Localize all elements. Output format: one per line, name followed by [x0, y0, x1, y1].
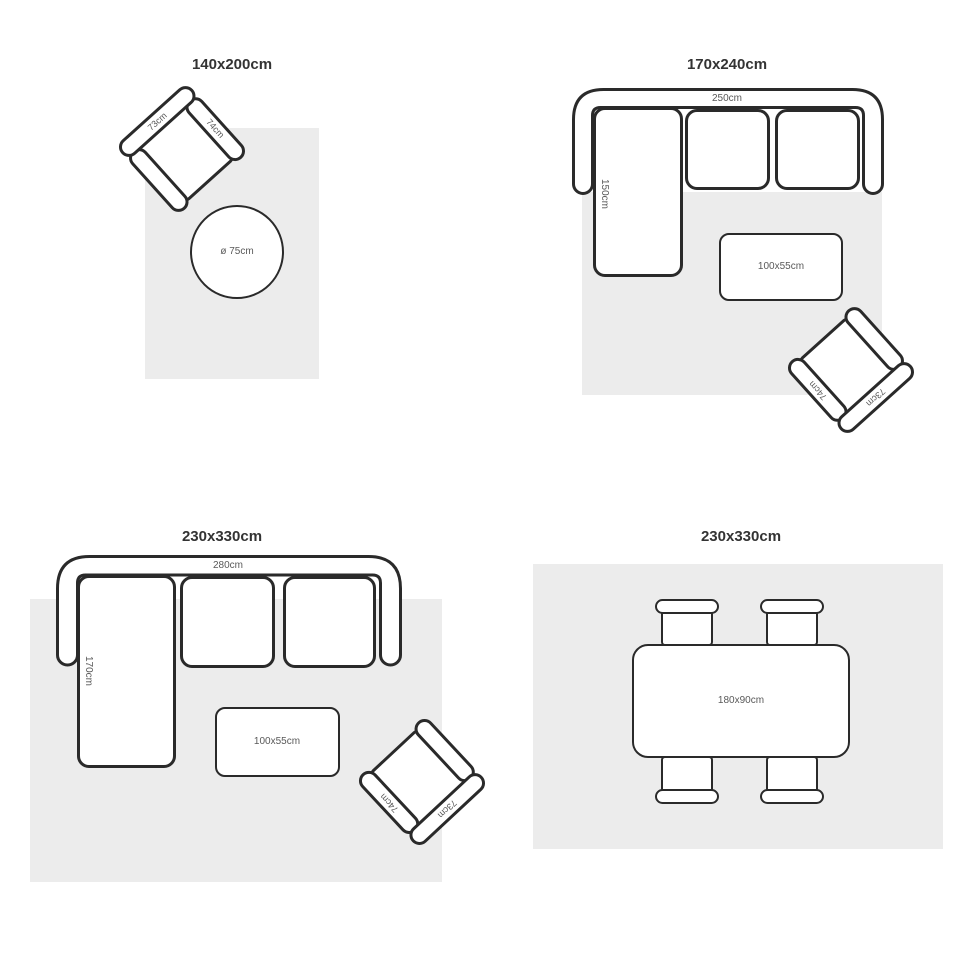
dining-chair-back — [760, 789, 824, 804]
sofa-cushion — [180, 576, 275, 668]
dining-chair-seat — [766, 610, 818, 646]
dining-chair-back — [760, 599, 824, 614]
sofa-cushion — [775, 109, 860, 190]
dining-chair-seat — [661, 610, 713, 646]
panel-title: 230x330cm — [701, 528, 781, 545]
coffee-table-dimension-label: 100x55cm — [254, 737, 300, 747]
sofa-cushion — [283, 576, 376, 668]
dining-chair-back — [655, 789, 719, 804]
dining-table-dimension-label: 180x90cm — [718, 696, 764, 706]
panel-rug-230x330-dining: 230x330cm 180x90cm — [0, 0, 485, 485]
sofa-width-dimension-label: 280cm — [213, 561, 243, 571]
dining-chair-back — [655, 599, 719, 614]
dining-chair-seat — [661, 756, 713, 793]
sofa-cushion — [685, 109, 770, 190]
sofa-depth-dimension-label: 150cm — [599, 179, 609, 209]
panel-title: 170x240cm — [687, 56, 767, 73]
sofa-width-dimension-label: 250cm — [712, 94, 742, 104]
dining-chair-seat — [766, 756, 818, 793]
coffee-table-dimension-label: 100x55cm — [758, 262, 804, 272]
sofa-depth-dimension-label: 170cm — [83, 656, 93, 686]
panel-title: 230x330cm — [182, 528, 262, 545]
